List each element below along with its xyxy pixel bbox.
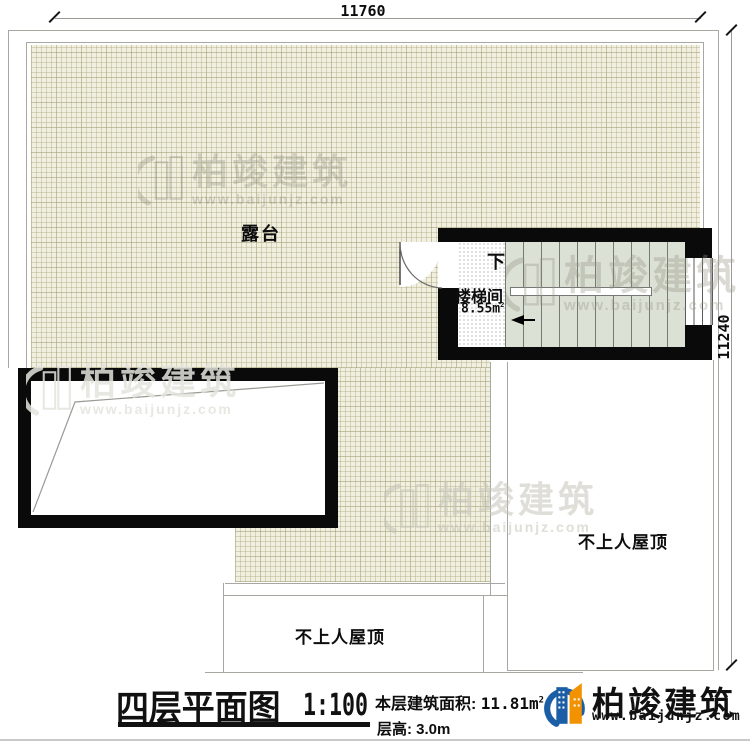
roof-opening-frame bbox=[18, 368, 338, 528]
parapet-top-inner bbox=[26, 42, 704, 43]
parapet-left-inner bbox=[26, 42, 27, 368]
roof-opening-slope-lines bbox=[31, 381, 325, 515]
sheet-bottom-edge bbox=[0, 739, 750, 741]
roof-opening-interior bbox=[31, 381, 325, 515]
lower-roof-bottom-edge bbox=[205, 672, 583, 673]
company-logo-url: www.baijunjz.com bbox=[592, 709, 741, 724]
stairwell-window bbox=[685, 258, 713, 325]
stairwell-wall-top bbox=[438, 228, 712, 242]
dim-value-top: 11760 bbox=[313, 2, 413, 20]
floor-area-text: 本层建筑面积: 11.81m2 bbox=[375, 690, 544, 714]
stair-down-label: 下 bbox=[487, 248, 505, 274]
floor-area-label: 本层建筑面积: bbox=[375, 696, 476, 713]
dim-value-right: 11240 bbox=[715, 307, 733, 367]
parapet-right-inner bbox=[703, 42, 704, 228]
roof-label-right: 不上人屋顶 bbox=[578, 528, 668, 553]
lower-roof-right-edge bbox=[483, 595, 484, 673]
right-roof-left-edge-a bbox=[490, 362, 491, 596]
terrace-south-edge-2 bbox=[223, 595, 507, 596]
right-roof-right-edge bbox=[713, 360, 714, 671]
dim-tick-top-right bbox=[694, 11, 706, 23]
stair-direction-arrow-tail bbox=[523, 319, 535, 321]
stairwell-wall-right-lower bbox=[685, 325, 712, 360]
terrace-label: 露台 bbox=[241, 220, 281, 246]
right-roof-bottom-edge bbox=[507, 670, 714, 671]
terrace-hatch-top bbox=[31, 45, 700, 228]
title-underline bbox=[118, 722, 370, 727]
stairwell-wall-bottom bbox=[438, 347, 712, 360]
terrace-south-edge-1 bbox=[225, 583, 505, 584]
roof-outline-left-outer bbox=[8, 30, 9, 368]
stair-handrail bbox=[510, 287, 652, 296]
right-roof-left-edge-b bbox=[507, 362, 508, 671]
roof-outline-top-outer bbox=[8, 30, 719, 31]
stairwell-wall-right-upper bbox=[685, 242, 712, 258]
lower-roof-left-edge bbox=[223, 583, 224, 673]
door-icon bbox=[395, 239, 449, 293]
dim-tick-top-left bbox=[48, 11, 60, 23]
roof-label-bottom: 不上人屋顶 bbox=[295, 623, 385, 648]
floor-height-text: 层高: 3.0m bbox=[377, 718, 450, 739]
company-logo-icon bbox=[543, 678, 588, 735]
plan-scale: 1:100 bbox=[303, 688, 368, 723]
floor-area-value: 11.81m bbox=[481, 694, 539, 713]
floor-plan-sheet: 露台 下 楼梯间 8.55m2 不上人屋顶 不上人屋顶 11760 11240 … bbox=[0, 0, 750, 743]
stair-room-area: 8.55m2 bbox=[461, 300, 504, 316]
stair-room-area-sup: 2 bbox=[500, 300, 504, 309]
